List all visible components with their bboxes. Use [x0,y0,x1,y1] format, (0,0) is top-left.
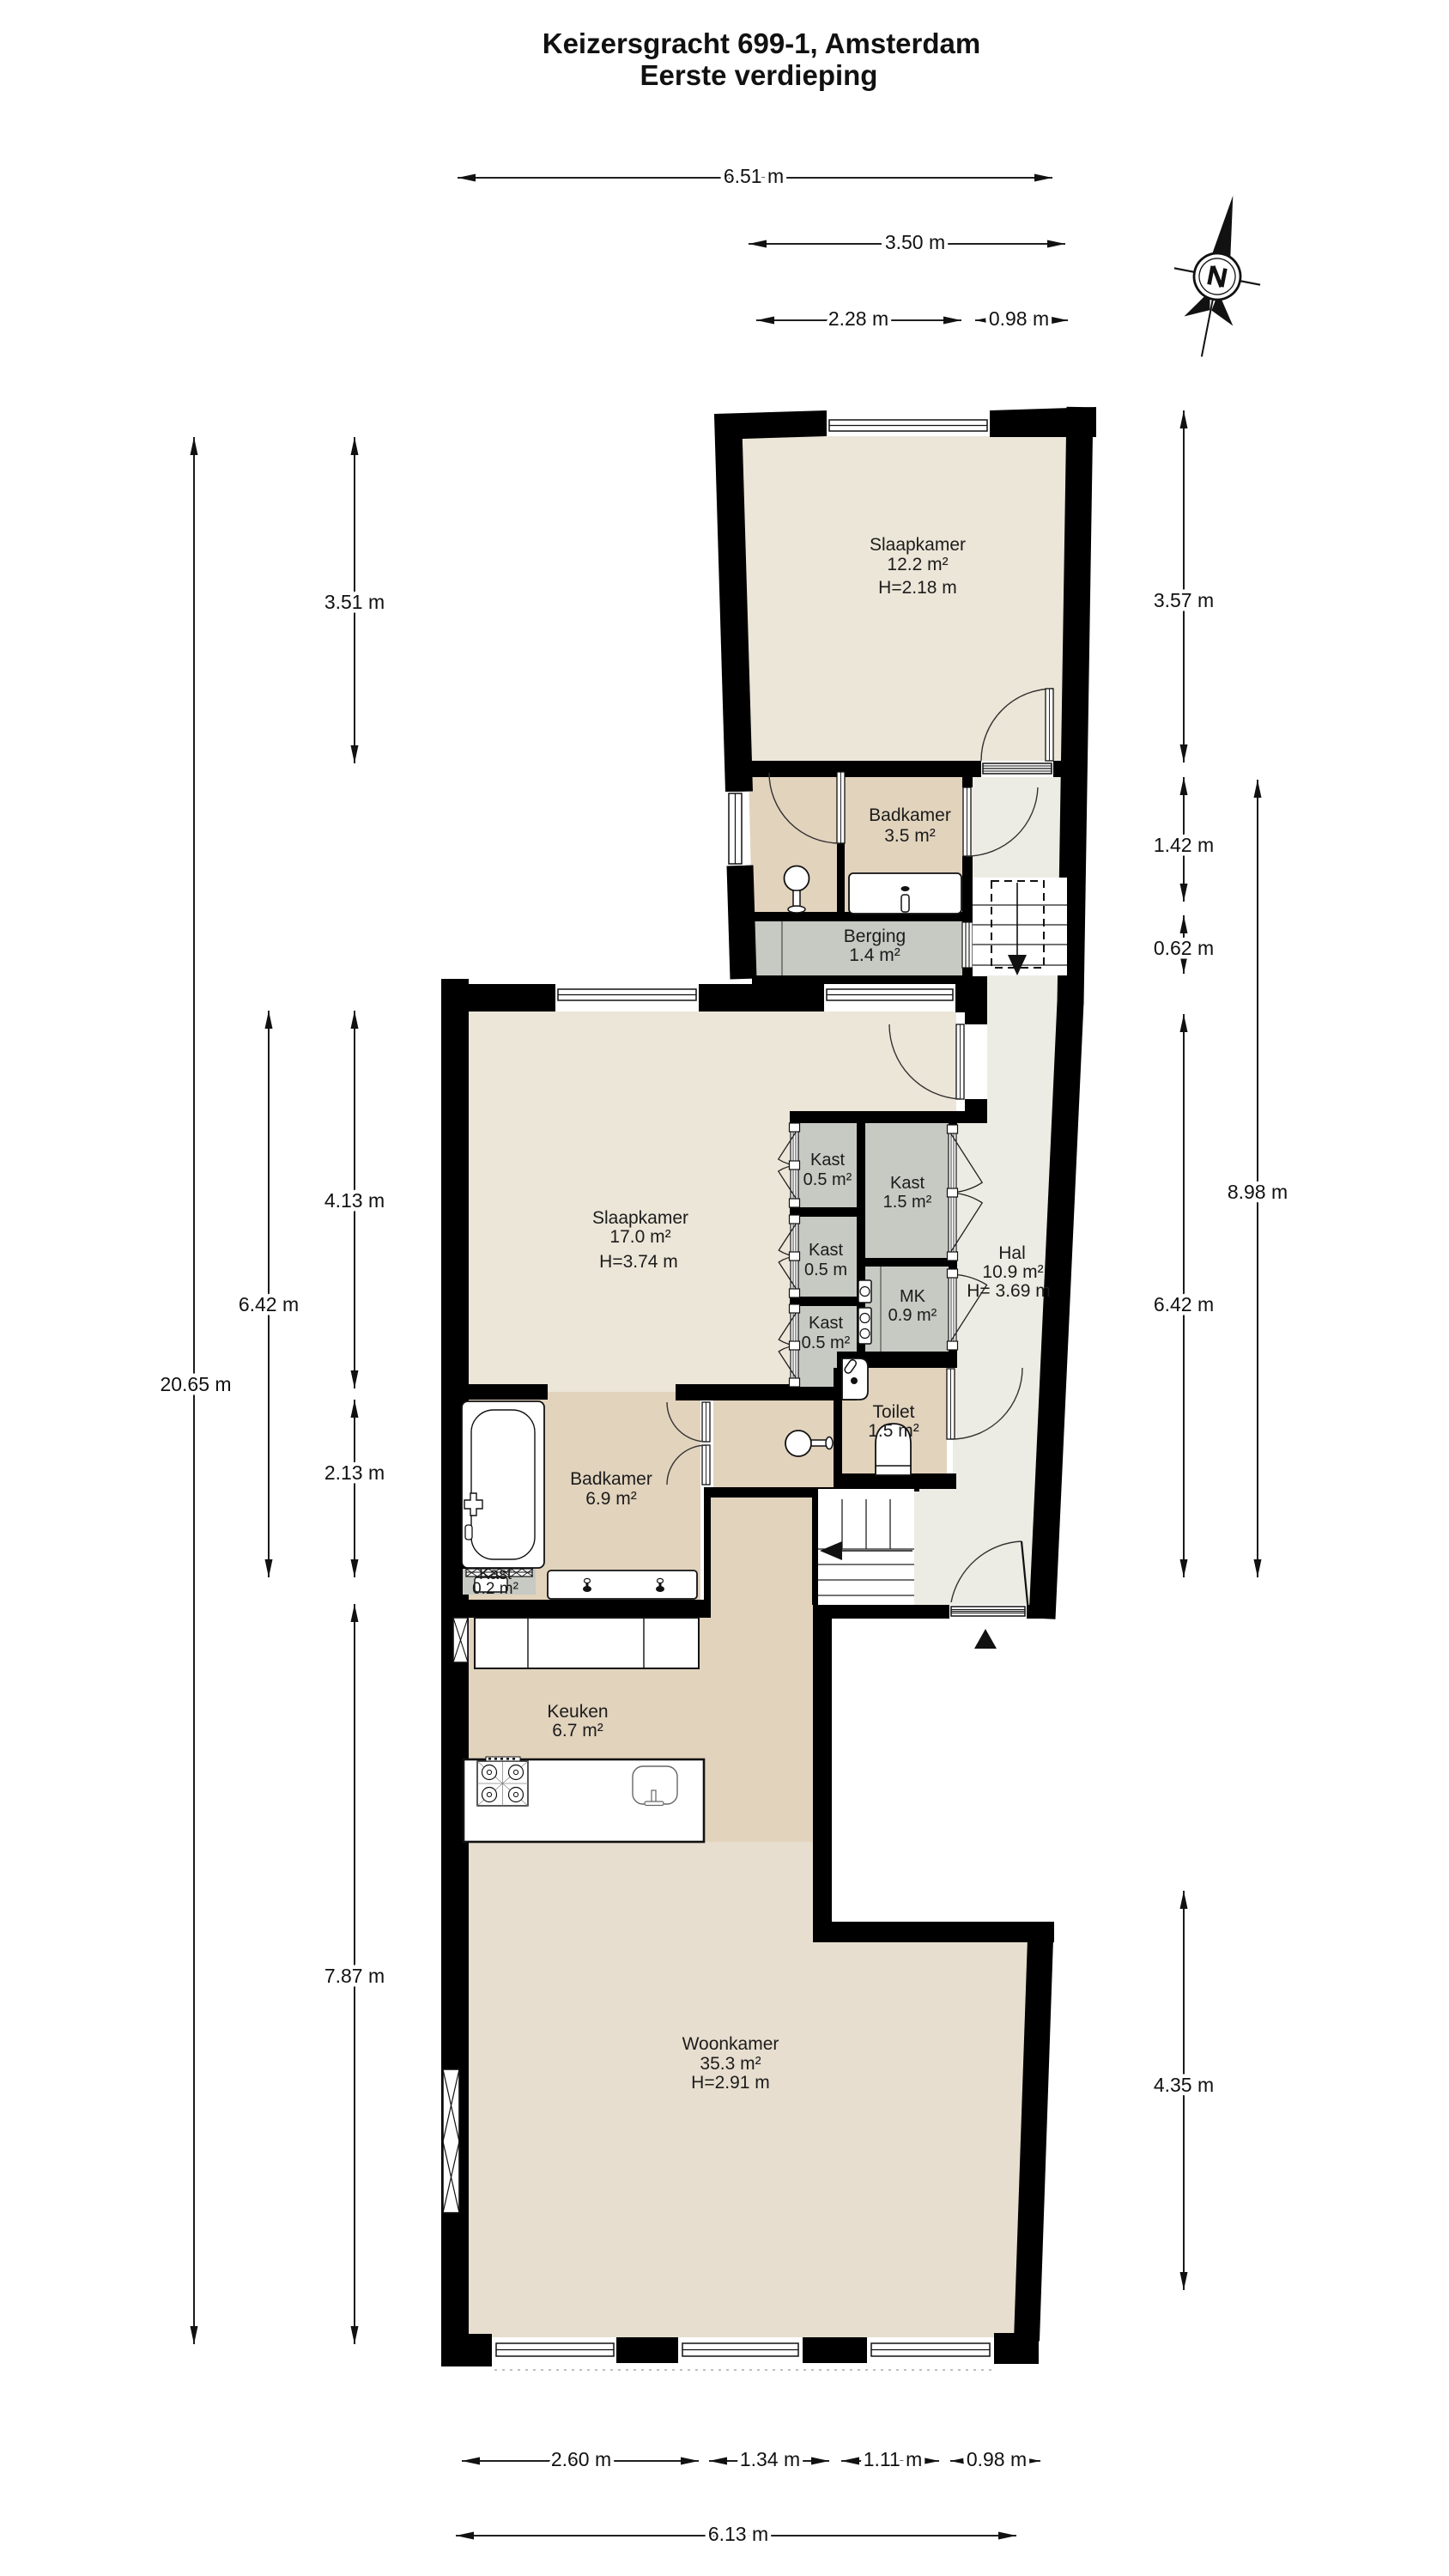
svg-text:3.50 m: 3.50 m [885,231,945,253]
svg-text:Eerste verdieping: Eerste verdieping [640,59,878,91]
svg-text:Keuken: Keuken [547,1702,608,1722]
svg-text:10.9 m²: 10.9 m² [982,1262,1043,1282]
svg-text:1.34 m: 1.34 m [740,2448,800,2470]
svg-text:1.11 m: 1.11 m [864,2448,923,2470]
svg-text:Badkamer: Badkamer [869,805,951,825]
svg-text:6.51 m: 6.51 m [724,165,784,187]
svg-text:35.3 m²: 35.3 m² [700,2054,761,2074]
svg-text:2.13 m: 2.13 m [324,1461,385,1484]
svg-text:3.51 m: 3.51 m [324,591,385,613]
svg-text:12.2 m²: 12.2 m² [887,555,948,574]
svg-text:0.5 m²: 0.5 m² [803,1170,852,1189]
svg-text:4.13 m: 4.13 m [324,1189,385,1212]
svg-text:1.5 m²: 1.5 m² [868,1421,919,1441]
svg-text:0.9 m²: 0.9 m² [888,1306,937,1325]
svg-text:0.62 m: 0.62 m [1154,937,1214,959]
svg-text:H=2.18 m: H=2.18 m [878,578,957,598]
svg-text:1.4 m²: 1.4 m² [849,945,900,965]
svg-text:17.0 m²: 17.0 m² [609,1227,670,1247]
svg-text:6.7 m²: 6.7 m² [552,1721,603,1741]
svg-text:6.42 m: 6.42 m [239,1293,299,1315]
svg-text:0.98 m: 0.98 m [989,307,1049,330]
svg-text:6.13 m: 6.13 m [708,2523,768,2545]
svg-text:3.57 m: 3.57 m [1154,589,1214,611]
svg-text:0.5 m: 0.5 m [804,1261,847,1279]
svg-text:Kast: Kast [809,1314,843,1333]
svg-text:20.65 m: 20.65 m [160,1373,231,1395]
svg-text:6.9 m²: 6.9 m² [585,1489,637,1509]
svg-text:2.60 m: 2.60 m [551,2448,611,2470]
svg-text:H=2.91 m: H=2.91 m [691,2073,770,2093]
svg-text:6.42 m: 6.42 m [1154,1293,1214,1315]
svg-text:1.42 m: 1.42 m [1154,834,1214,856]
svg-text:Badkamer: Badkamer [570,1469,652,1489]
svg-text:MK: MK [900,1287,926,1306]
svg-text:Slaapkamer: Slaapkamer [592,1208,688,1228]
svg-text:Keizersgracht 699-1, Amsterdam: Keizersgracht 699-1, Amsterdam [543,27,981,59]
svg-text:7.87 m: 7.87 m [324,1965,385,1987]
svg-text:Toilet: Toilet [872,1402,914,1422]
svg-text:Slaapkamer: Slaapkamer [870,535,966,555]
svg-text:Kast: Kast [810,1151,845,1170]
svg-text:1.5 m²: 1.5 m² [883,1193,932,1212]
svg-text:0.2 m²: 0.2 m² [472,1580,518,1598]
svg-text:H= 3.69 m: H= 3.69 m [967,1281,1050,1301]
svg-text:0.5 m²: 0.5 m² [802,1334,851,1352]
svg-text:Kast: Kast [890,1174,925,1193]
svg-text:8.98 m: 8.98 m [1228,1181,1288,1203]
svg-text:Berging: Berging [844,927,906,946]
svg-text:Woonkamer: Woonkamer [682,2034,779,2054]
svg-text:3.5 m²: 3.5 m² [884,826,936,846]
svg-text:2.28 m: 2.28 m [828,307,888,330]
svg-text:0.98 m: 0.98 m [967,2448,1027,2470]
svg-text:Hal: Hal [998,1243,1026,1263]
svg-text:4.35 m: 4.35 m [1154,2074,1214,2096]
svg-text:H=3.74 m: H=3.74 m [599,1252,678,1272]
svg-text:Kast: Kast [809,1241,843,1260]
